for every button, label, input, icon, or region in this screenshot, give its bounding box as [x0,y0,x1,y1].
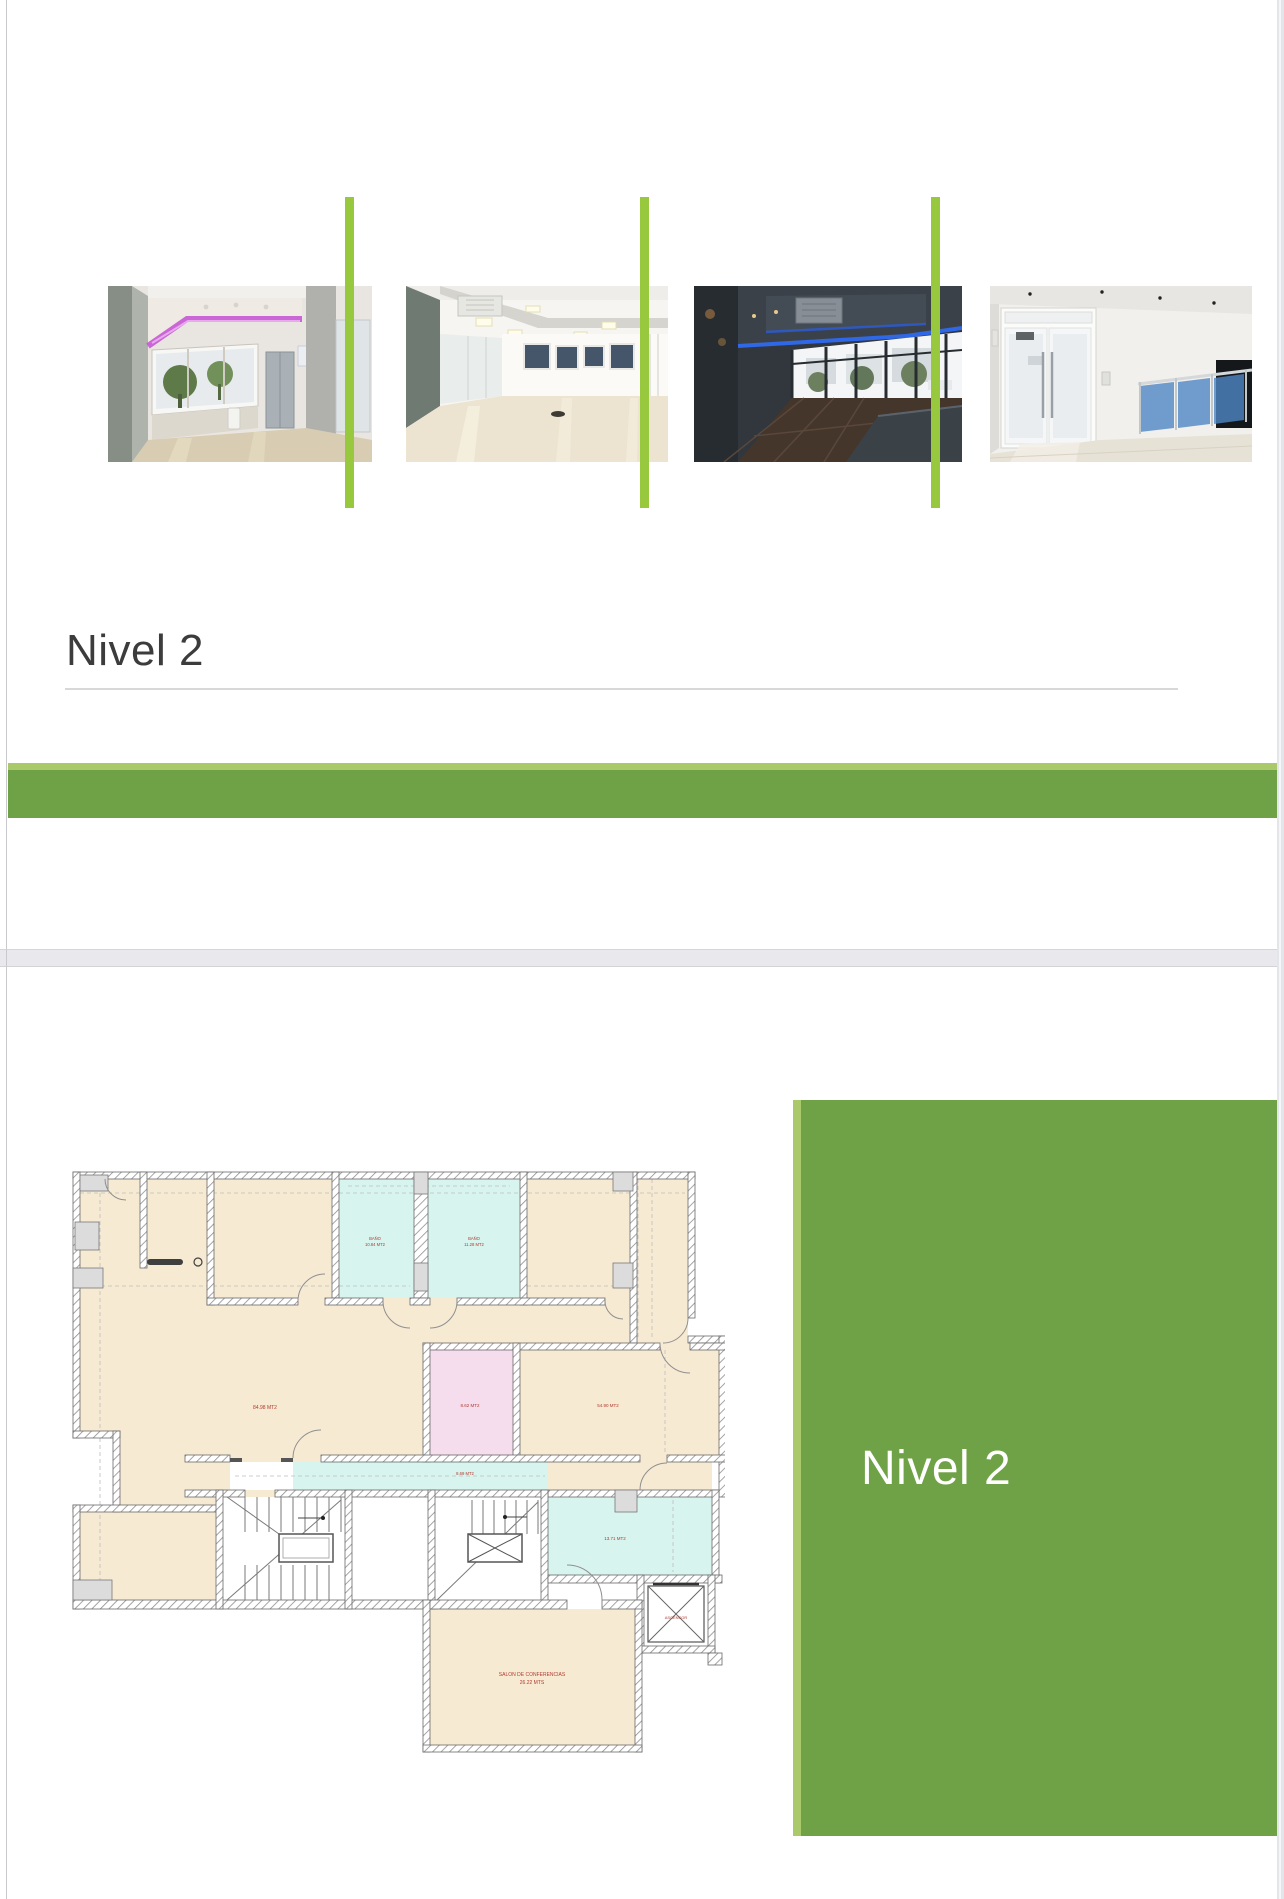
floor-plan: BAÑO 10.84 MT2 BAÑO 11.28 MT2 84.98 MT2 … [65,1160,725,1760]
photo-separator-bar-1 [345,197,354,508]
photo-open-office-art [406,286,668,462]
label-right-room: 54.90 MT2 [597,1403,619,1408]
slide1-title-underline [65,688,1178,690]
photo-blue-cove-room [694,286,962,462]
slide2-panel-title: Nivel 2 [801,1441,1011,1496]
label-bano1-2: 10.84 MT2 [365,1242,386,1247]
photo-separator-bar-3 [931,197,940,508]
scrollbar-track-inner [1279,0,1281,1899]
slide2-green-panel: Nivel 2 [793,1100,1277,1836]
label-conference-1: SALON DE CONFERENCIAS [499,1672,566,1678]
slide-1: Nivel 2 [0,0,1284,949]
label-teal-room: 13.71 MT2 [604,1536,626,1541]
slide1-accent-band-top [8,763,1277,770]
label-corridor: 8.69 MT2 [456,1471,474,1476]
photo-separator-bar-2 [640,197,649,508]
label-main-room: 84.98 MT2 [253,1405,277,1411]
photo-lobby-door [990,286,1252,462]
label-pink-room: 8.62 MT2 [460,1403,480,1408]
label-bano1-1: BAÑO [369,1236,382,1241]
photo-lobby-door-art [990,286,1252,462]
label-bano2-2: 11.28 MT2 [464,1242,484,1247]
floor-plan-elevator [648,1584,704,1642]
page-left-edge-line [6,0,7,1899]
slide1-title: Nivel 2 [66,626,204,677]
label-bano2-1: BAÑO [468,1236,481,1241]
photo-interior-purple-cove [108,286,372,462]
photo-interior-purple-cove-art [108,286,372,462]
label-conference-2: 26.22 MTS [520,1680,545,1686]
scrollbar-track[interactable] [1277,0,1284,1899]
presentation-view: { "slide1": { "title": "Nivel 2", "photo… [0,0,1284,1899]
slide1-accent-band [8,770,1277,818]
photo-open-office [406,286,668,462]
slide-gap [0,949,1284,967]
photo-blue-cove-room-art [694,286,962,462]
label-elevator: ASCENSOR [665,1615,688,1620]
